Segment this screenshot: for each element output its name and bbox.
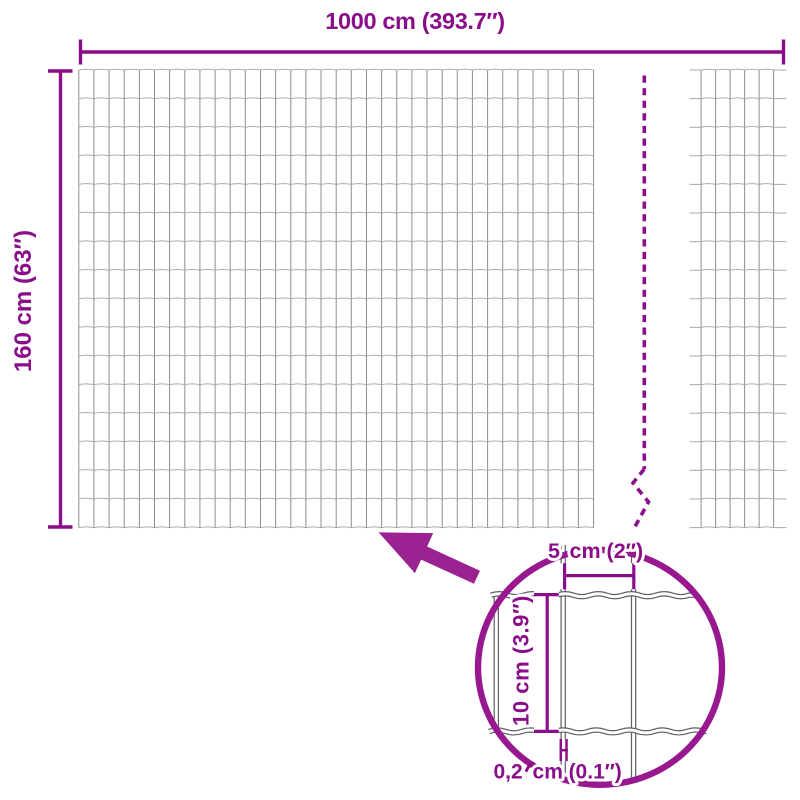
- svg-text:10 cm (3.9″): 10 cm (3.9″): [509, 595, 534, 726]
- svg-text:0,2: 0,2: [494, 761, 523, 784]
- svg-text:5: 5: [548, 539, 560, 563]
- svg-text:(0.1″): (0.1″): [569, 761, 622, 784]
- svg-text:cm: cm: [533, 761, 563, 784]
- svg-text:1000 cm (393.7″): 1000 cm (393.7″): [325, 8, 504, 34]
- svg-text:cm (2″): cm (2″): [569, 539, 643, 563]
- svg-text:160 cm (63″): 160 cm (63″): [10, 230, 37, 372]
